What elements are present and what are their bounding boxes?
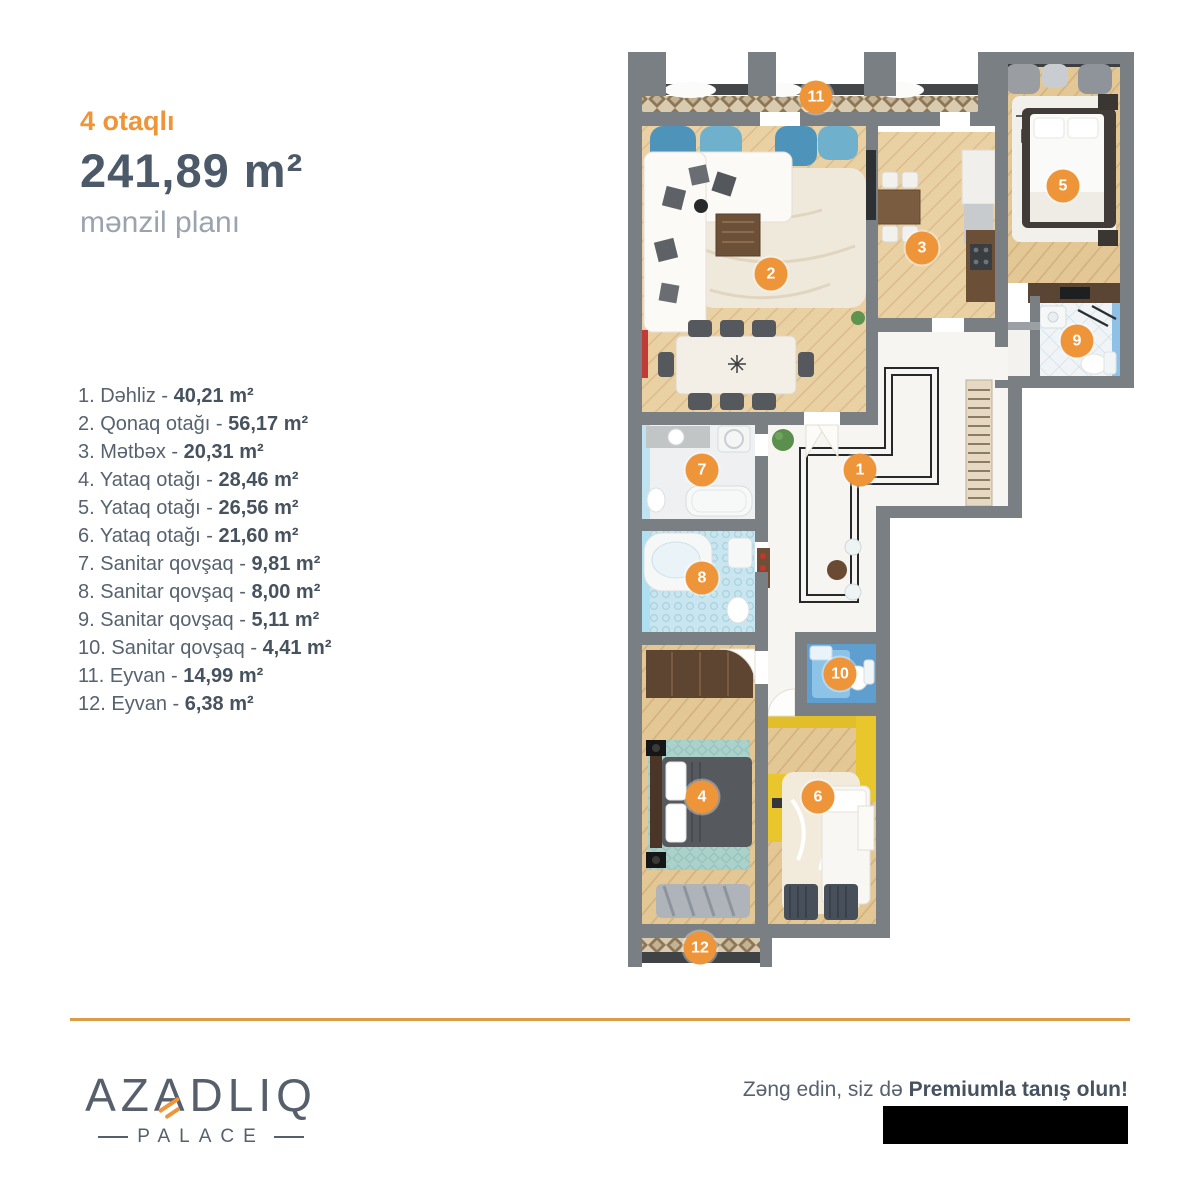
logo-subtitle: PALACE (78, 1126, 324, 1148)
logo-letter: Z (121, 1068, 154, 1122)
room-list-item: 7. Sanitar qovşaq - 9,81 m² (78, 550, 332, 578)
room-list-item: 2. Qonaq otağı - 56,17 m² (78, 410, 332, 438)
room-name: 12. Eyvan - (78, 693, 185, 715)
room-list: 1. Dəhliz - 40,21 m²2. Qonaq otağı - 56,… (78, 382, 332, 718)
cta-bold-text: Premiumla tanış olun! (909, 1078, 1128, 1101)
logo-letter: A (154, 1068, 190, 1122)
total-area: 241,89 m² (80, 143, 303, 198)
room-name: 4. Yataq otağı - (78, 469, 218, 491)
room-area-value: 28,46 m² (218, 469, 298, 491)
room-name: 6. Yataq otağı - (78, 525, 218, 547)
call-to-action: Zəng edin, siz də Premiumla tanış olun! (743, 1078, 1128, 1102)
room-name: 3. Mətbəx - (78, 441, 184, 463)
logo-letter: L (228, 1068, 259, 1122)
room-area-value: 8,00 m² (251, 581, 320, 603)
room-list-item: 4. Yataq otağı - 28,46 m² (78, 466, 332, 494)
room-list-item: 6. Yataq otağı - 21,60 m² (78, 522, 332, 550)
rooms-count-label: 4 otaqlı (80, 106, 303, 137)
room-name: 7. Sanitar qovşaq - (78, 553, 251, 575)
room-list-item: 1. Dəhliz - 40,21 m² (78, 382, 332, 410)
room-name: 9. Sanitar qovşaq - (78, 609, 251, 631)
flyer-page: 4 otaqlı 241,89 m² mənzil planı 1. Dəhli… (0, 0, 1200, 1200)
room-area-value: 20,31 m² (184, 441, 264, 463)
logo: AZADLIQ PALACE (78, 1068, 324, 1148)
room-list-item: 12. Eyvan - 6,38 m² (78, 690, 332, 718)
logo-wordmark: AZADLIQ (78, 1068, 324, 1122)
room-list-item: 3. Mətbəx - 20,31 m² (78, 438, 332, 466)
logo-dash-right (274, 1136, 304, 1138)
room-name: 11. Eyvan - (78, 665, 183, 687)
room-name: 8. Sanitar qovşaq - (78, 581, 251, 603)
redacted-phone-box (883, 1106, 1128, 1144)
room-area-value: 56,17 m² (228, 413, 308, 435)
logo-letter: A (85, 1068, 121, 1122)
room-area-value: 14,99 m² (183, 665, 263, 687)
plan-subtitle: mənzil planı (80, 206, 303, 240)
room-list-item: 8. Sanitar qovşaq - 8,00 m² (78, 578, 332, 606)
room-name: 2. Qonaq otağı - (78, 413, 228, 435)
logo-letter: Q (276, 1068, 317, 1122)
room-area-value: 5,11 m² (251, 609, 319, 631)
logo-letter: I (258, 1068, 276, 1122)
room-area-value: 9,81 m² (251, 553, 320, 575)
room-area-value: 6,38 m² (185, 693, 254, 715)
room-name: 1. Dəhliz - (78, 385, 174, 407)
header: 4 otaqlı 241,89 m² mənzil planı (80, 106, 303, 240)
logo-subtitle-text: PALACE (137, 1126, 265, 1148)
room-name: 10. Sanitar qovşaq - (78, 637, 263, 659)
cta-regular-text: Zəng edin, siz də (743, 1078, 909, 1101)
room-name: 5. Yataq otağı - (78, 497, 218, 519)
room-list-item: 5. Yataq otağı - 26,56 m² (78, 494, 332, 522)
room-area-value: 4,41 m² (263, 637, 332, 659)
room-list-item: 10. Sanitar qovşaq - 4,41 m² (78, 634, 332, 662)
room-list-item: 9. Sanitar qovşaq - 5,11 m² (78, 606, 332, 634)
orange-divider-line (70, 1018, 1130, 1021)
room-area-value: 26,56 m² (218, 497, 298, 519)
room-area-value: 21,60 m² (218, 525, 298, 547)
room-area-value: 40,21 m² (174, 385, 254, 407)
room-list-item: 11. Eyvan - 14,99 m² (78, 662, 332, 690)
logo-dash-left (98, 1136, 128, 1138)
floor-plan-image (600, 30, 1160, 990)
logo-letter: D (190, 1068, 228, 1122)
